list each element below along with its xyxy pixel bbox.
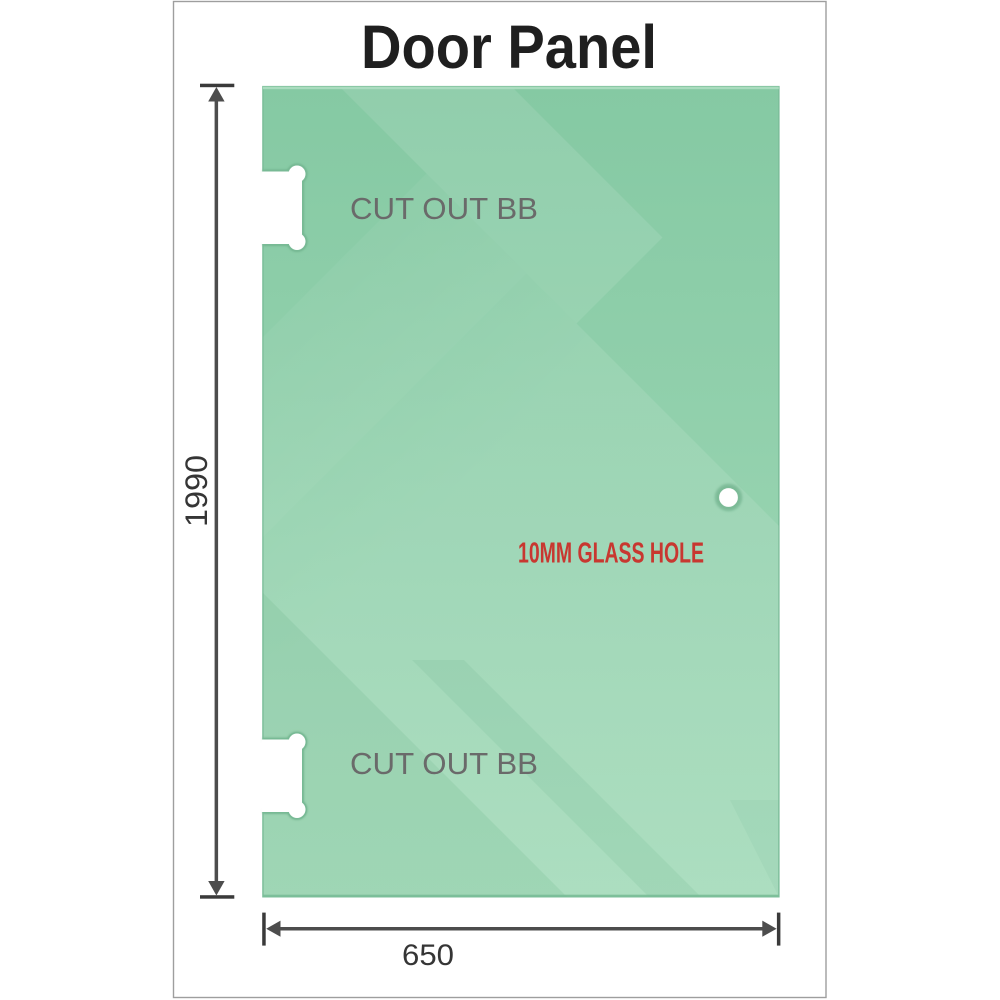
svg-text:CUT OUT BB: CUT OUT BB <box>350 191 538 226</box>
svg-text:10MM GLASS HOLE: 10MM GLASS HOLE <box>518 538 704 570</box>
svg-text:CUT OUT BB: CUT OUT BB <box>350 746 538 781</box>
svg-text:1990: 1990 <box>178 455 214 527</box>
svg-text:650: 650 <box>402 939 454 972</box>
svg-text:Door Panel: Door Panel <box>361 13 657 81</box>
